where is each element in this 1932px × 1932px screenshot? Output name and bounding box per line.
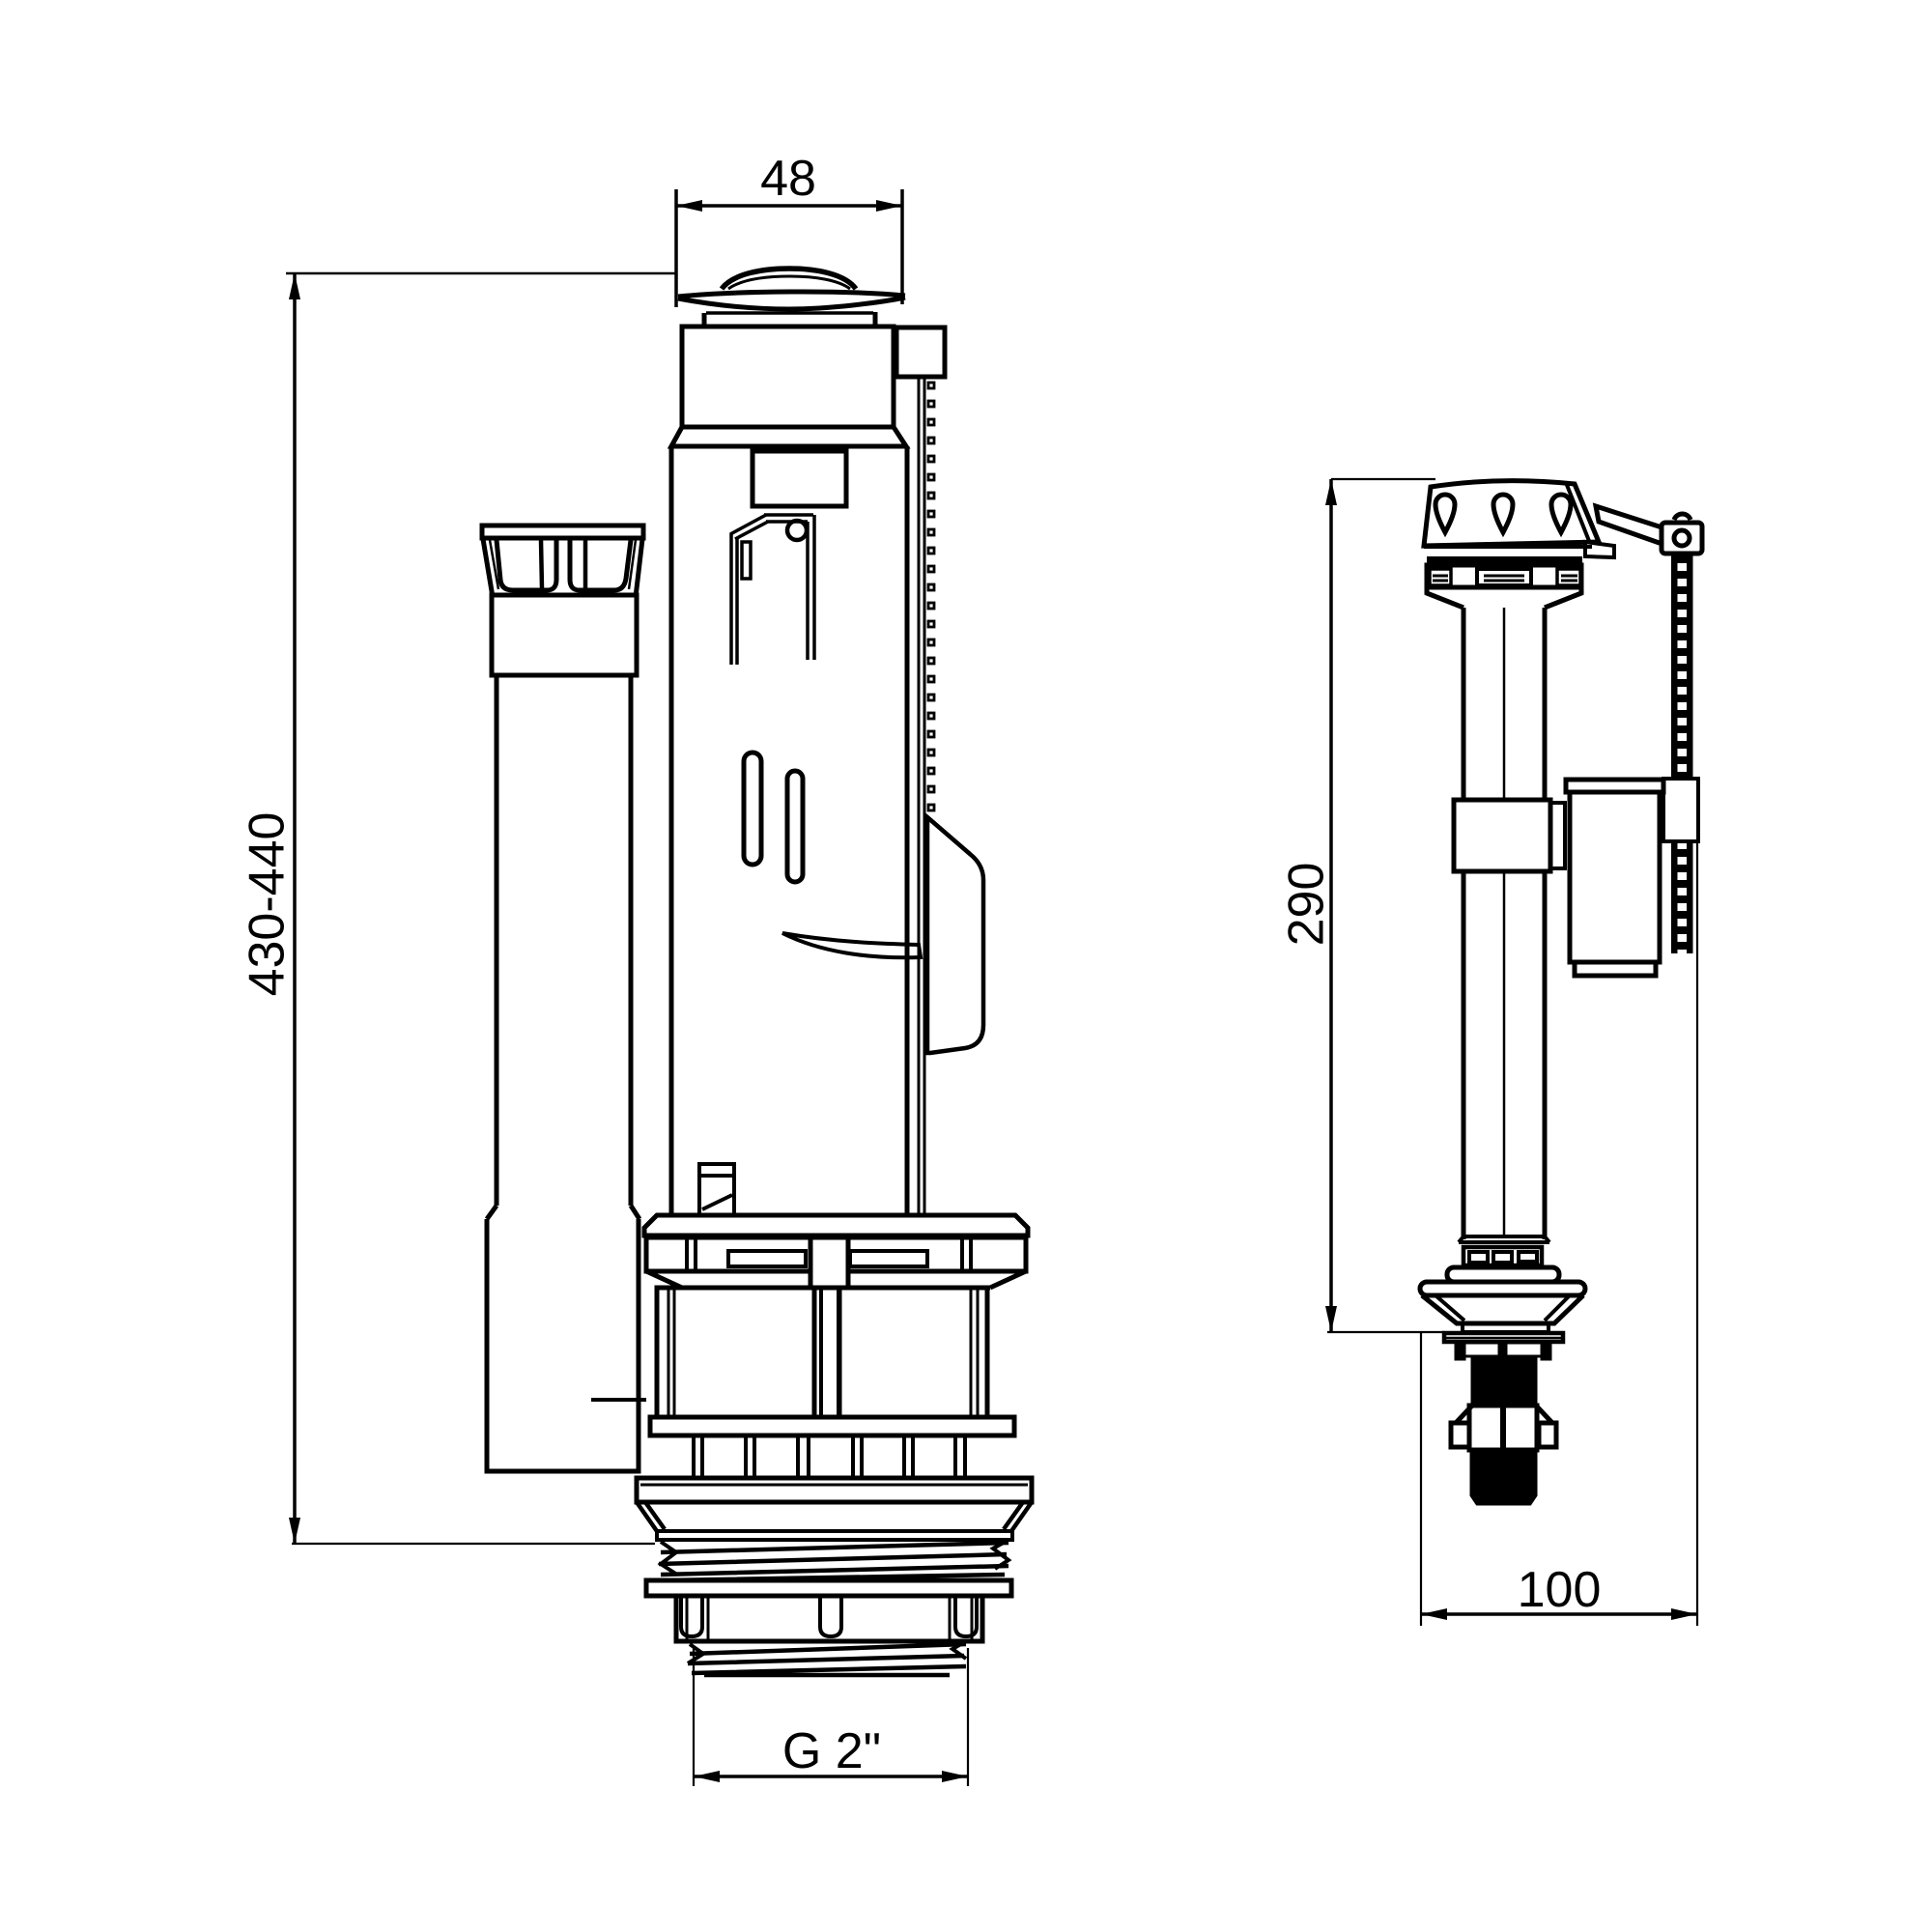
svg-text:290: 290 xyxy=(1279,863,1335,947)
svg-text:430-440: 430-440 xyxy=(240,812,296,997)
svg-text:100: 100 xyxy=(1518,1562,1602,1618)
svg-text:G 2": G 2" xyxy=(782,1723,881,1779)
svg-text:48: 48 xyxy=(760,151,816,207)
